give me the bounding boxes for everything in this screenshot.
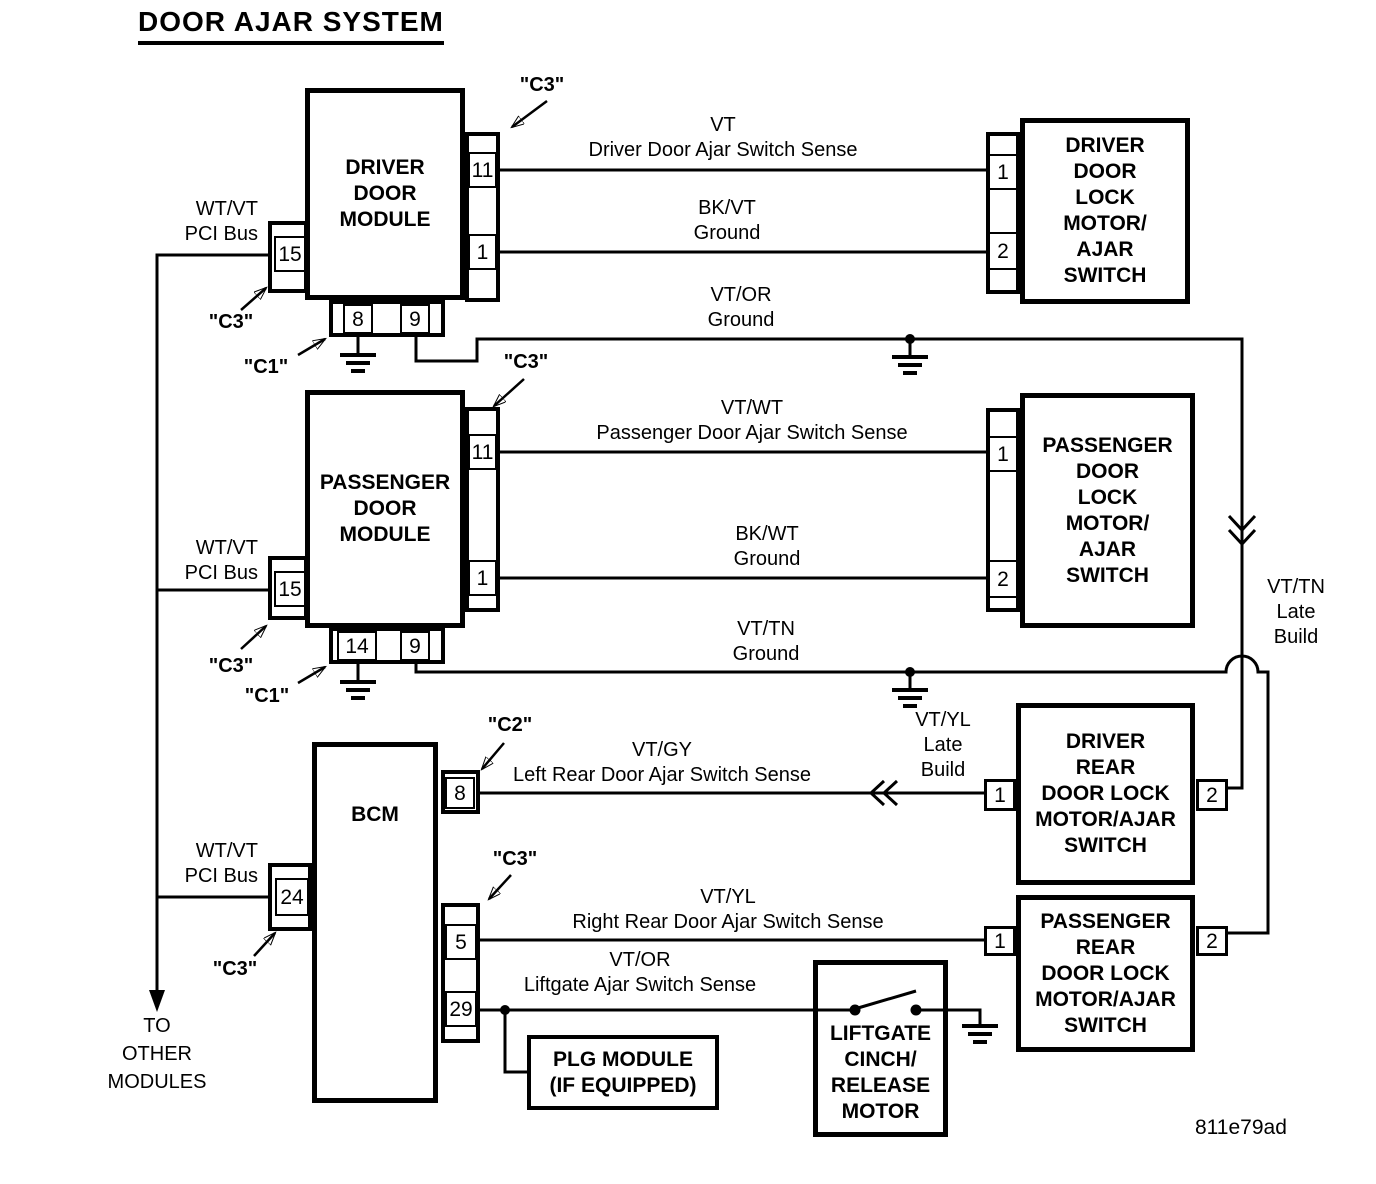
- ground-symbol-driver-module: [340, 337, 376, 371]
- c3-label-driver-left: "C3": [209, 311, 254, 334]
- c3-label-passenger-left: "C3": [209, 655, 254, 678]
- arrow-c1-driver: [298, 339, 325, 355]
- wire-label-liftgate-ajar: VT/OR Liftgate Ajar Switch Sense: [524, 948, 756, 998]
- pci-bus-label-driver: WT/VT PCI Bus: [158, 197, 258, 247]
- wire-liftgate-ground: [916, 1010, 980, 1024]
- wiring-svg: [0, 0, 1376, 1184]
- wire-plg-branch: [505, 1010, 529, 1072]
- c3-label-bcm-right: "C3": [493, 848, 538, 871]
- pci-bus-label-bcm: WT/VT PCI Bus: [158, 839, 258, 889]
- ground-symbol-passenger-module: [340, 664, 376, 698]
- arrow-c3-bcm-right: [489, 875, 511, 899]
- late-build-label-vt-yl: VT/YL Late Build: [915, 708, 971, 783]
- door-ajar-system-diagram: DOOR AJAR SYSTEM DRIVER DOOR MODULE PASS…: [0, 0, 1376, 1184]
- arrow-c3-passenger-right: [494, 379, 524, 406]
- diagram-part-number: 811e79ad: [1195, 1116, 1287, 1140]
- c3-label-passenger-right: "C3": [504, 351, 549, 374]
- arrow-c3-passenger-left: [241, 626, 266, 649]
- arrow-c2-bcm: [482, 743, 504, 769]
- ground-symbol-liftgate: [962, 1026, 998, 1042]
- junction-dot-plg: [500, 1005, 510, 1015]
- wire-label-left-rear-ajar: VT/GY Left Rear Door Ajar Switch Sense: [513, 738, 811, 788]
- arrow-c1-passenger: [298, 667, 325, 683]
- wire-label-passenger-ajar: VT/WT Passenger Door Ajar Switch Sense: [596, 396, 907, 446]
- late-build-label-vt-tn: VT/TN Late Build: [1267, 575, 1325, 650]
- wire-label-vt-tn-ground: VT/TN Ground: [733, 617, 800, 667]
- c3-label-bcm-left: "C3": [213, 958, 258, 981]
- pci-bus-arrowhead: [149, 990, 165, 1012]
- pci-bus-label-passenger: WT/VT PCI Bus: [158, 536, 258, 586]
- wire-label-driver-ground: BK/VT Ground: [694, 196, 761, 246]
- arrow-c3-driver-right: [512, 101, 547, 127]
- wire-label-vt-or-ground: VT/OR Ground: [708, 283, 775, 333]
- c2-label-bcm: "C2": [488, 714, 533, 737]
- liftgate-ajar-switch-symbol: [850, 991, 922, 1016]
- c1-label-passenger: "C1": [245, 685, 290, 708]
- to-other-modules-label: TO OTHER MODULES: [108, 1012, 207, 1096]
- wire-label-right-rear-ajar: VT/YL Right Rear Door Ajar Switch Sense: [572, 885, 883, 935]
- wire-label-passenger-ground: BK/WT Ground: [734, 522, 801, 572]
- c1-label-driver: "C1": [244, 356, 289, 379]
- wire-label-driver-ajar: VT Driver Door Ajar Switch Sense: [589, 113, 858, 163]
- c3-label-driver-right: "C3": [520, 74, 565, 97]
- arrow-c3-driver-left: [241, 288, 266, 310]
- arrow-c3-bcm-left: [254, 933, 275, 956]
